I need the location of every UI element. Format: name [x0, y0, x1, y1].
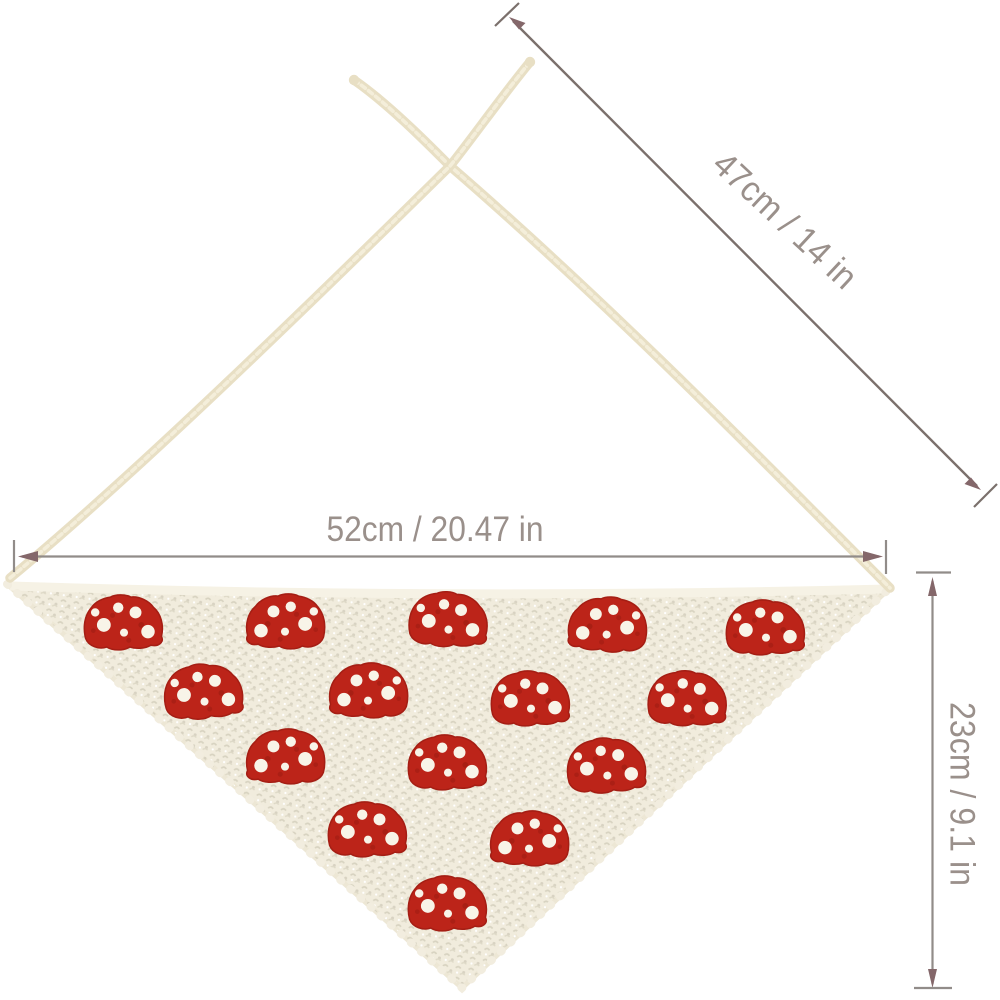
svg-text:23cm / 9.1 in: 23cm / 9.1 in [943, 702, 982, 886]
svg-text:52cm / 20.47 in: 52cm / 20.47 in [327, 510, 544, 549]
